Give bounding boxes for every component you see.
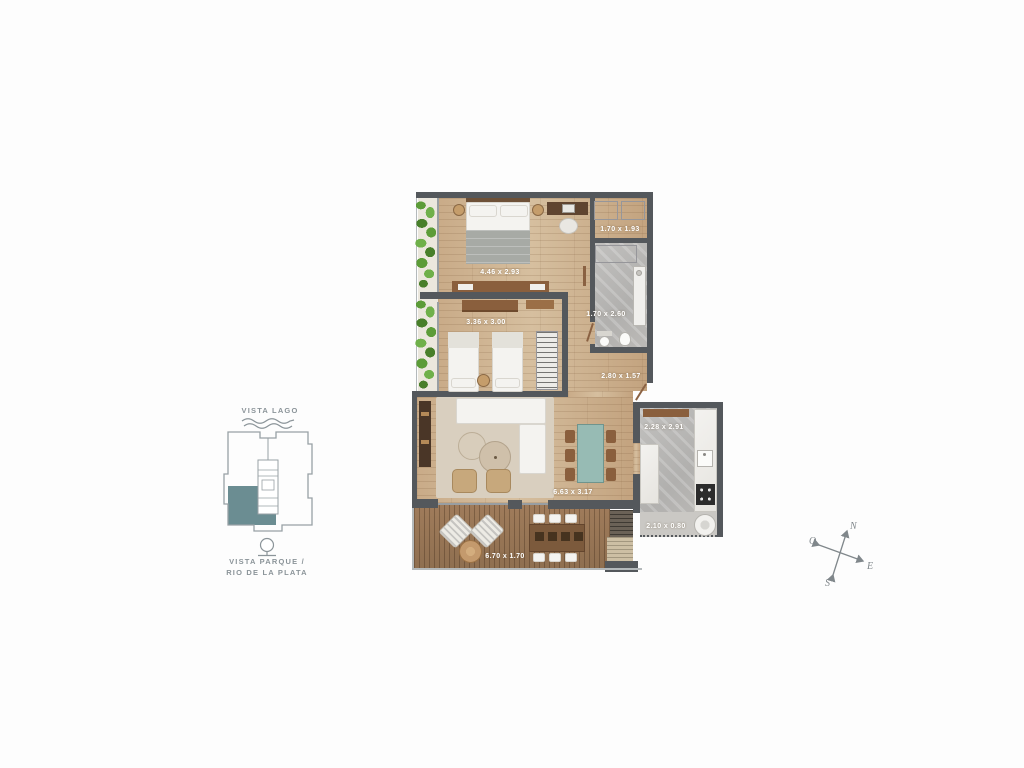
compass-west-label: O	[809, 536, 816, 547]
dims-living-dining: 6.63 x 3.17	[528, 488, 618, 497]
placemat	[561, 532, 570, 541]
sofa-top-section	[456, 398, 546, 424]
placemat	[535, 532, 544, 541]
keyplan-building-footprint	[222, 428, 314, 538]
compass-north-label: N	[849, 521, 858, 532]
wall-top	[416, 192, 653, 198]
dims-bathroom: 1.70 x 2.60	[561, 310, 651, 319]
kitchen-door-opening	[633, 443, 640, 474]
armchair-right	[486, 469, 511, 493]
bedroom2-shelf	[526, 300, 554, 309]
sideboard-object-2	[421, 440, 429, 444]
compass-south-label: S	[825, 578, 830, 589]
dining-chair	[606, 449, 616, 462]
planter-plants-top	[413, 200, 439, 290]
placemat	[574, 532, 583, 541]
dims-kitchen: 2.28 x 2.91	[619, 423, 709, 432]
wall-laundry-right	[717, 512, 723, 537]
sideboard-object-1	[421, 412, 429, 416]
wall-closet-bottom	[590, 238, 653, 243]
wall-terrace-block-left	[412, 499, 438, 508]
keyplan-view-top-label: VISTA LAGO	[222, 406, 318, 415]
wall-living-bottom-east	[548, 500, 640, 509]
master-pillow-left	[469, 205, 497, 217]
sliding-door-line-1	[438, 503, 508, 505]
dining-chair	[606, 430, 616, 443]
dims-master-bedroom: 4.46 x 2.93	[455, 268, 545, 277]
closet-wardrobe-b	[621, 201, 645, 220]
master-bedroom-door	[583, 266, 586, 286]
cooktop	[696, 484, 715, 505]
dims-terrace: 6.70 x 1.70	[460, 552, 550, 561]
bedroom2-slatted-closet	[536, 331, 558, 390]
outdoor-chair	[533, 514, 545, 523]
nightstand-right	[532, 204, 544, 216]
keyplan-view-bottom-label-1: VISTA PARQUE /	[207, 557, 327, 566]
wall-bath-bottom	[590, 347, 653, 353]
bidet	[619, 332, 631, 346]
wall-slider-stub	[508, 500, 522, 509]
dresser-drawer-left	[458, 284, 473, 290]
wall-terrace-se-corner	[605, 561, 638, 572]
master-pillow-right	[500, 205, 528, 217]
master-bed-blanket	[466, 230, 530, 264]
sink-faucet	[703, 453, 706, 456]
bedroom2-wardrobe	[462, 300, 518, 312]
coffee-table-dot	[494, 456, 497, 459]
single-bed-a-blanket	[448, 332, 479, 348]
closet-wardrobe-a	[594, 201, 618, 220]
shower-drain	[636, 270, 642, 276]
dims-laundry: 2.10 x 0.80	[621, 522, 711, 531]
bedroom2-nightstand	[477, 374, 490, 387]
dining-chair	[565, 449, 575, 462]
wall-living-left	[412, 391, 417, 503]
wall-mid-bedrooms	[420, 292, 568, 299]
sliding-door-line-2	[522, 503, 548, 505]
compass-rose: N S O E	[806, 518, 878, 590]
terrace-edge-bottom	[412, 568, 642, 570]
wall-kitchen-right	[717, 408, 723, 512]
dining-chair	[606, 468, 616, 481]
outdoor-chair	[565, 553, 577, 562]
dresser-drawer-right	[530, 284, 545, 290]
desk-laptop	[562, 204, 575, 213]
dining-table	[577, 424, 604, 483]
dining-chair	[565, 430, 575, 443]
sofa-right-section	[519, 424, 546, 474]
planter-plants-bottom	[413, 299, 439, 391]
keyplan-view-bottom-label-2: RIO DE LA PLATA	[207, 568, 327, 577]
outdoor-chair	[565, 514, 577, 523]
floor-plan-page: 4.46 x 2.93 3.36 x 3.00 1.70 x 1.93 1.70…	[0, 0, 1024, 768]
placemat	[548, 532, 557, 541]
single-bed-a-pillow	[451, 378, 476, 388]
single-bed-b-blanket	[492, 332, 523, 348]
wall-kitchen-top	[640, 402, 723, 408]
kitchen-shelf	[643, 409, 689, 417]
nightstand-left	[453, 204, 465, 216]
kitchen-counter-left	[640, 444, 659, 504]
toilet-bowl	[599, 336, 610, 347]
sideboard	[419, 401, 431, 467]
single-bed-b-pillow	[495, 378, 520, 388]
compass-east-label: E	[866, 561, 873, 572]
dims-walk-in-closet: 1.70 x 1.93	[575, 225, 665, 234]
dining-chair	[565, 468, 575, 481]
dims-hallway: 2.80 x 1.57	[576, 372, 666, 381]
bathroom-wardrobe	[595, 245, 637, 263]
armchair-left	[452, 469, 477, 493]
outdoor-chair	[549, 514, 561, 523]
terrace-edge-left	[412, 508, 414, 568]
dims-second-bedroom: 3.36 x 3.00	[441, 318, 531, 327]
terrace-pergola-slats	[607, 537, 633, 562]
outdoor-chair	[549, 553, 561, 562]
